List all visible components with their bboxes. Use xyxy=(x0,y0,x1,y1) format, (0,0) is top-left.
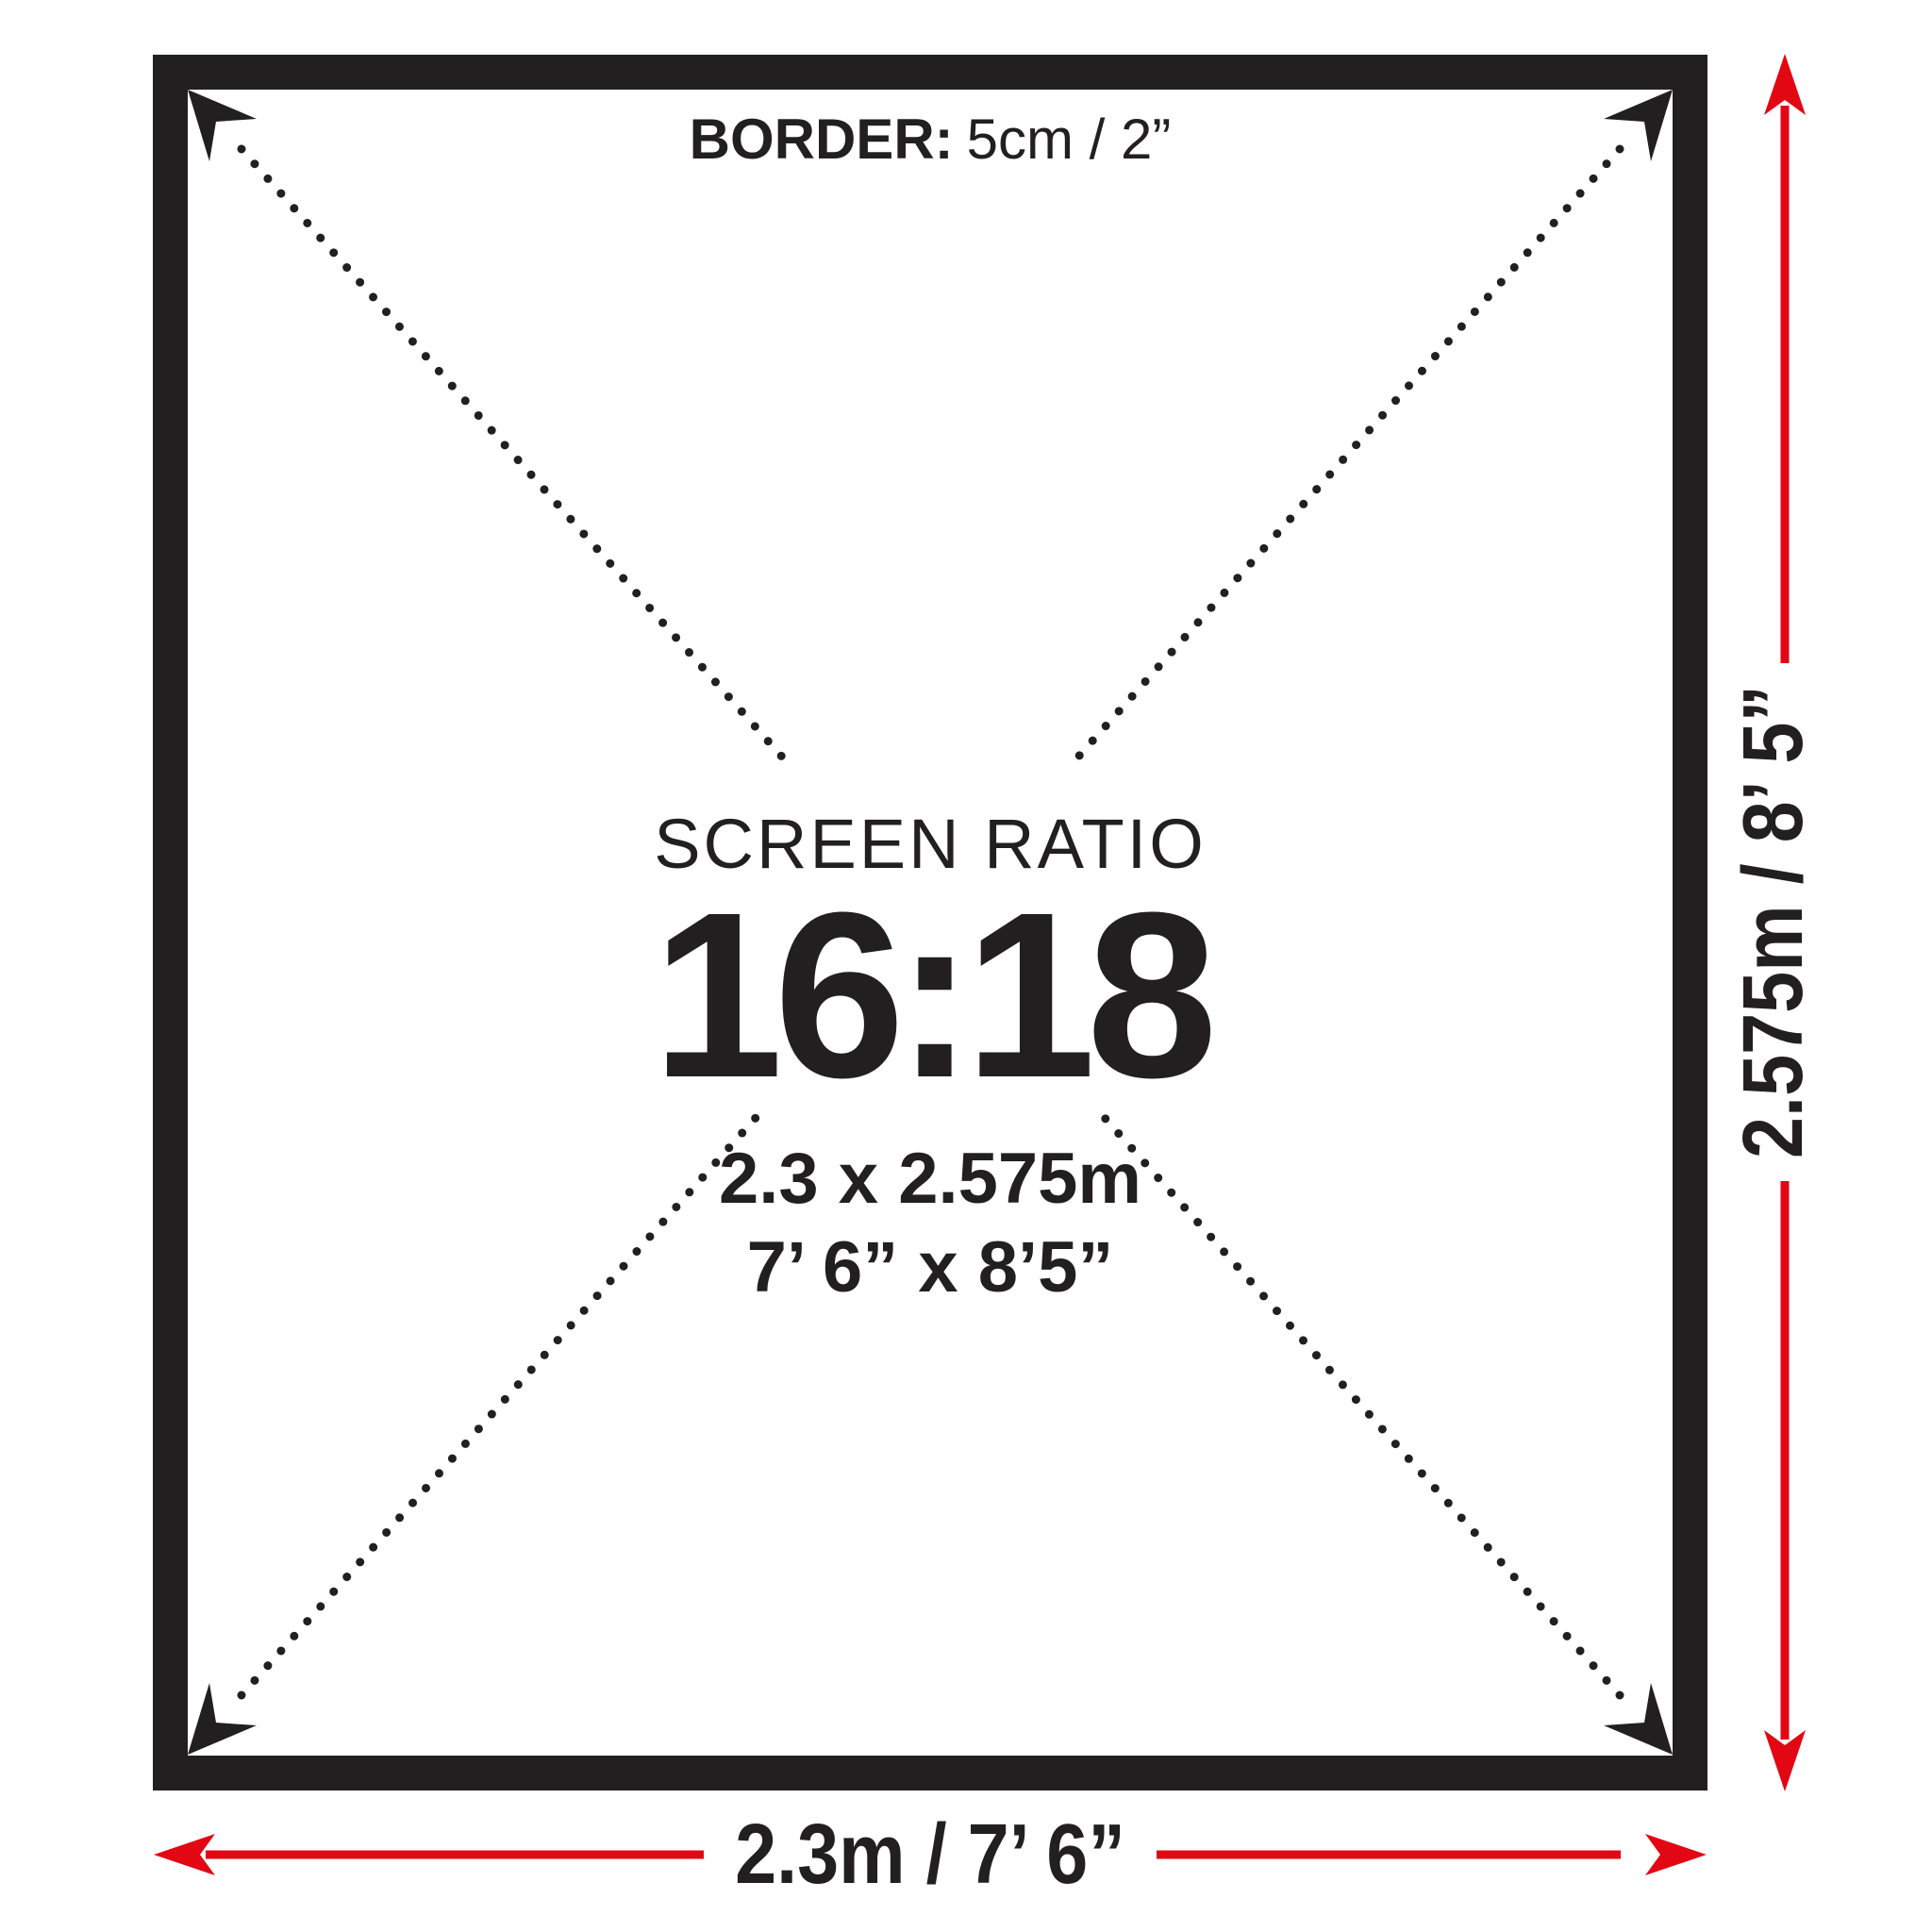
screen-ratio-value: 16:18 xyxy=(652,877,1207,1113)
height-dimension-label: 2.575m / 8’ 5” xyxy=(1731,685,1816,1158)
screen-dimension-diagram: BORDER:5cm / 2” SCREEN RATIO 16:18 2.3 x… xyxy=(0,0,1932,1932)
border-note-label: BORDER: xyxy=(690,108,954,171)
border-note: BORDER:5cm / 2” xyxy=(690,111,1172,168)
corner-arrow-top-left-icon xyxy=(188,90,257,161)
border-note-value: 5cm / 2” xyxy=(967,108,1172,171)
screen-size-metric: 2.3 x 2.575m xyxy=(719,1143,1141,1215)
diagonal-dots-top-left xyxy=(241,149,788,763)
corner-arrow-bottom-right-icon xyxy=(1604,1683,1673,1755)
corner-arrow-bottom-left-icon xyxy=(188,1683,257,1755)
diagonal-dots-bottom-left xyxy=(241,1118,756,1695)
width-arrow-right-head-icon xyxy=(1645,1834,1707,1875)
width-dimension-label: 2.3m / 7’ 6” xyxy=(735,1812,1125,1897)
screen-size-imperial: 7’ 6” x 8’5” xyxy=(747,1232,1114,1304)
diagonal-dots-bottom-right xyxy=(1105,1118,1620,1695)
diagonal-dots-top-right xyxy=(1073,149,1620,763)
corner-arrow-top-right-icon xyxy=(1604,90,1673,161)
